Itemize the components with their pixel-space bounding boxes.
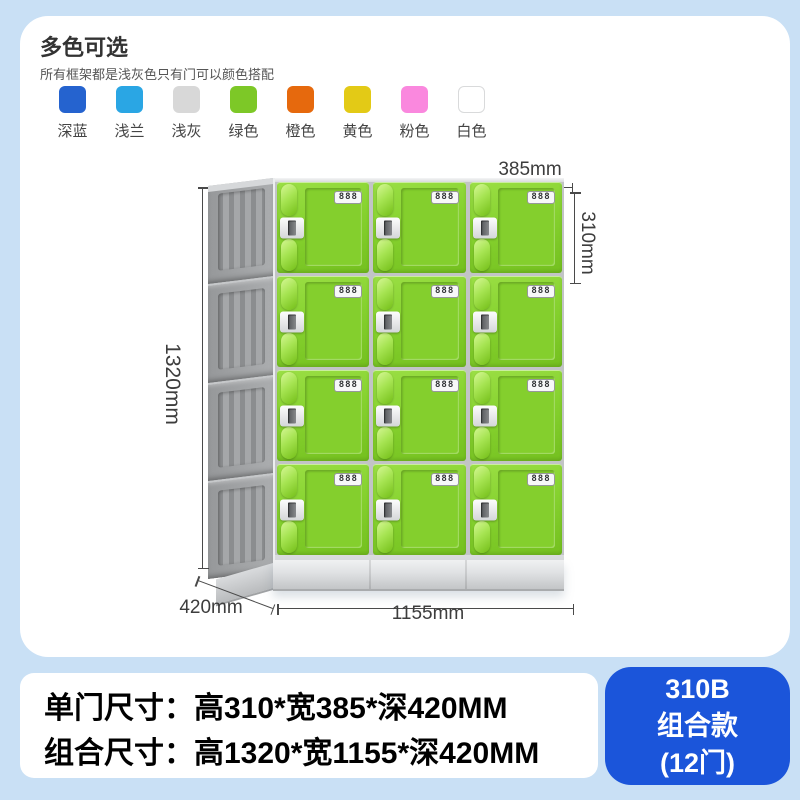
handle-slot <box>288 220 296 235</box>
swatch-item: 绿色 <box>215 86 272 141</box>
color-swatch <box>59 86 86 113</box>
handle-slot <box>384 314 392 329</box>
color-swatch <box>230 86 257 113</box>
side-ridges <box>218 386 265 467</box>
color-swatch <box>458 86 485 113</box>
handle-slot <box>384 502 392 517</box>
combination-lock: 888 <box>431 191 459 204</box>
handle-slot <box>481 314 489 329</box>
door-handle <box>376 405 400 426</box>
locker-door: 888 <box>470 182 562 273</box>
hinge-top <box>377 184 393 216</box>
hinge-top <box>281 372 297 404</box>
handle-slot <box>481 502 489 517</box>
door-handle <box>280 499 304 520</box>
locker-door: 888 <box>470 464 562 555</box>
combination-lock: 888 <box>431 379 459 392</box>
handle-slot <box>288 408 296 423</box>
side-module <box>208 276 273 382</box>
hinge-top <box>281 184 297 216</box>
hinge-bottom <box>281 333 297 365</box>
locker-door: 888 <box>277 276 369 367</box>
handle-slot <box>384 408 392 423</box>
door-handle <box>473 311 497 332</box>
combination-lock: 888 <box>334 379 362 392</box>
model-badge: 310B 组合款 (12门) <box>605 667 790 785</box>
model-type: 组合款 <box>605 708 790 745</box>
combination-lock: 888 <box>527 473 555 486</box>
base-divider <box>465 560 467 589</box>
locker-door: 888 <box>373 182 465 273</box>
door-handle <box>280 405 304 426</box>
hinge-bottom <box>377 521 393 553</box>
side-module <box>208 473 273 579</box>
hinge-top <box>474 184 490 216</box>
side-ridges <box>218 288 265 369</box>
dim-label-door-height: 310mm <box>576 188 598 298</box>
door-handle <box>280 217 304 238</box>
locker-side-panel <box>208 178 273 579</box>
handle-slot <box>384 220 392 235</box>
hinge-top <box>377 372 393 404</box>
color-swatch <box>401 86 428 113</box>
hinge-top <box>377 278 393 310</box>
door-handle <box>376 311 400 332</box>
hinge-bottom <box>474 427 490 459</box>
combination-lock: 888 <box>527 285 555 298</box>
dim-label-depth: 420mm <box>151 597 271 619</box>
locker-base <box>273 560 564 591</box>
hinge-top <box>474 372 490 404</box>
hinge-bottom <box>377 239 393 271</box>
side-ridges <box>218 188 265 271</box>
side-module <box>208 375 273 481</box>
locker-front: 888888888888888888888888888888888888 <box>273 178 564 560</box>
color-swatch <box>344 86 371 113</box>
swatch-item: 白色 <box>443 86 500 141</box>
swatch-label: 黄色 <box>342 120 372 141</box>
door-handle <box>473 499 497 520</box>
door-grid: 888888888888888888888888888888888888 <box>277 182 562 555</box>
dim-line-door-height <box>574 193 575 283</box>
hinge-bottom <box>281 427 297 459</box>
swatch-item: 橙色 <box>272 86 329 141</box>
swatch-label: 粉色 <box>399 120 429 141</box>
hinge-top <box>474 278 490 310</box>
product-image-page: { "theme": { "page_bg": "#c9e0f5", "card… <box>0 0 800 800</box>
hinge-bottom <box>474 521 490 553</box>
color-swatch <box>116 86 143 113</box>
swatch-item: 粉色 <box>386 86 443 141</box>
combined-size: 组合尺寸：高1320*宽1155*深420MM <box>44 728 539 772</box>
hinge-top <box>281 278 297 310</box>
door-handle <box>376 217 400 238</box>
locker-door: 888 <box>373 276 465 367</box>
locker-illustration: 888888888888888888888888888888888888 <box>208 176 564 612</box>
door-handle <box>280 311 304 332</box>
hinge-bottom <box>474 333 490 365</box>
swatch-label: 浅灰 <box>171 120 201 141</box>
color-options-subtitle: 所有框架都是浅灰色只有门可以颜色搭配 <box>40 64 274 83</box>
door-handle <box>376 499 400 520</box>
locker-door: 888 <box>373 370 465 461</box>
side-ridges <box>218 485 265 566</box>
model-number: 310B <box>605 671 790 708</box>
dim-label-height: 1320mm <box>160 304 184 464</box>
combination-lock: 888 <box>334 473 362 486</box>
base-divider <box>369 560 371 589</box>
handle-slot <box>481 220 489 235</box>
color-options-title: 多色可选 <box>40 30 128 62</box>
color-swatch <box>173 86 200 113</box>
door-handle <box>473 405 497 426</box>
hinge-bottom <box>474 239 490 271</box>
combination-lock: 888 <box>431 285 459 298</box>
dim-label-width: 1155mm <box>348 603 508 625</box>
side-module <box>208 178 273 284</box>
single-door-size: 单门尺寸：高310*宽385*深420MM <box>44 683 508 727</box>
swatch-label: 浅兰 <box>114 120 144 141</box>
swatch-item: 浅灰 <box>158 86 215 141</box>
door-handle <box>473 217 497 238</box>
swatch-label: 橙色 <box>285 120 315 141</box>
combination-lock: 888 <box>527 379 555 392</box>
hinge-top <box>474 466 490 498</box>
swatch-label: 深蓝 <box>57 120 87 141</box>
locker-door: 888 <box>277 464 369 555</box>
locker-door: 888 <box>277 182 369 273</box>
hinge-top <box>377 466 393 498</box>
hinge-bottom <box>281 521 297 553</box>
handle-slot <box>288 502 296 517</box>
swatch-label: 白色 <box>456 120 486 141</box>
handle-slot <box>288 314 296 329</box>
hinge-bottom <box>377 427 393 459</box>
combination-lock: 888 <box>334 191 362 204</box>
swatch-item: 黄色 <box>329 86 386 141</box>
size-spec-box: 单门尺寸：高310*宽385*深420MM 组合尺寸：高1320*宽1155*深… <box>20 673 598 778</box>
handle-slot <box>481 408 489 423</box>
locker-door: 888 <box>373 464 465 555</box>
swatch-label: 绿色 <box>228 120 258 141</box>
color-options-card: 多色可选 所有框架都是浅灰色只有门可以颜色搭配 深蓝浅兰浅灰绿色橙色黄色粉色白色… <box>20 16 790 657</box>
hinge-top <box>281 466 297 498</box>
hinge-bottom <box>281 239 297 271</box>
swatch-item: 浅兰 <box>101 86 158 141</box>
locker-door: 888 <box>277 370 369 461</box>
model-doors: (12门) <box>605 745 790 782</box>
hinge-bottom <box>377 333 393 365</box>
color-swatch <box>287 86 314 113</box>
locker-door: 888 <box>470 276 562 367</box>
combination-lock: 888 <box>334 285 362 298</box>
swatch-row: 深蓝浅兰浅灰绿色橙色黄色粉色白色 <box>44 86 500 141</box>
combination-lock: 888 <box>527 191 555 204</box>
locker-door: 888 <box>470 370 562 461</box>
swatch-item: 深蓝 <box>44 86 101 141</box>
combination-lock: 888 <box>431 473 459 486</box>
dim-line-height <box>202 188 203 568</box>
